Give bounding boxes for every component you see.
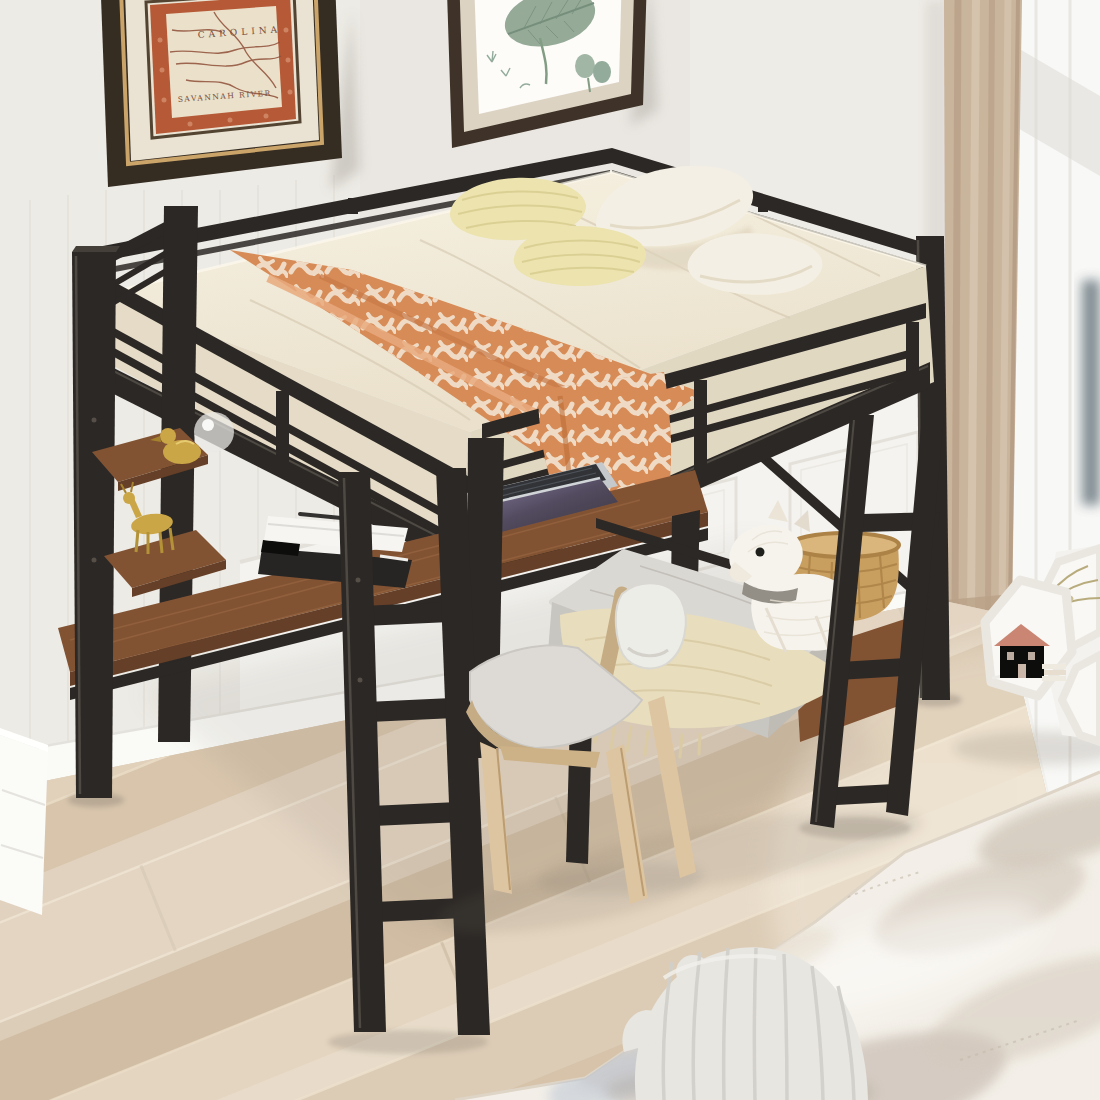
bedroom-photo: CAROLINA SAVANNAH RIVER — [0, 0, 1100, 1100]
scene-canvas: CAROLINA SAVANNAH RIVER — [0, 0, 1100, 1100]
ambient-light-overlay — [0, 0, 1100, 1100]
